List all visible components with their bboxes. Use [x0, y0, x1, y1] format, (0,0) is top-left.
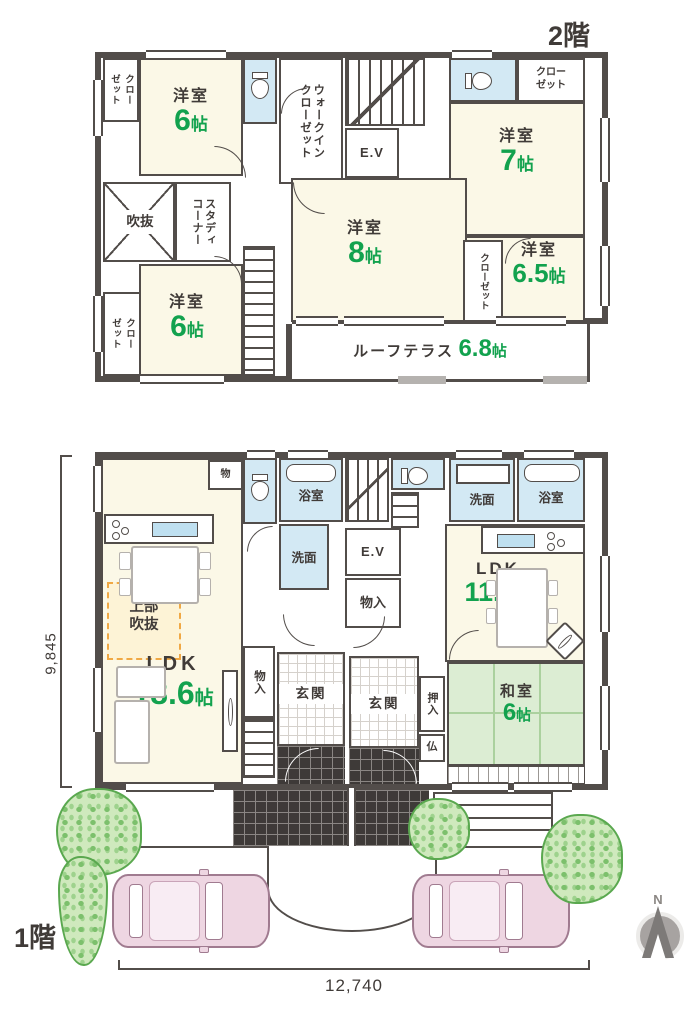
porch-apron [233, 790, 429, 846]
tv-icon [557, 633, 574, 650]
garden-step [457, 819, 553, 831]
f1-stairs-left-unit [345, 458, 389, 522]
window [496, 316, 566, 326]
burner-icon [112, 520, 120, 528]
f2-walkin-closet-label: ウォークイン クローゼット [281, 60, 341, 182]
f1-bath-left: 浴室 [279, 458, 343, 522]
sofa [114, 700, 150, 764]
compass-arrow-notch [650, 934, 666, 960]
f2-room-7 [449, 102, 585, 236]
car-mirror [199, 869, 209, 876]
approach-divider [347, 788, 356, 846]
f2-closet-bottom-left: クロー ゼット [103, 292, 141, 376]
window [140, 374, 224, 384]
f1-washitsu [447, 662, 585, 766]
sink-icon [497, 534, 535, 548]
window [296, 316, 338, 326]
car [412, 874, 570, 948]
f1-closet-top-label: 物 [210, 462, 241, 488]
dining-table [496, 568, 548, 648]
car-mirror [499, 946, 509, 953]
f2-void: 吹抜 [103, 182, 175, 262]
kitchen-counter [104, 514, 214, 544]
f2-closet-mid: クローゼット [463, 240, 503, 322]
burner-icon [557, 539, 565, 547]
burner-icon [547, 543, 555, 551]
dim-tick [60, 455, 72, 457]
chair [199, 552, 211, 570]
f2-closet-top-left: クロー ゼット [103, 58, 139, 122]
burner-icon [112, 532, 120, 540]
f1-butsudan-label: 仏 [421, 736, 443, 760]
f1-oshiire: 押入 [419, 676, 445, 732]
window [452, 782, 508, 792]
tree [408, 798, 470, 860]
f2-closet-bottom-left-label: クロー ゼット [105, 294, 139, 374]
toilet-icon [249, 72, 271, 102]
dim-width-label: 12,740 [254, 976, 454, 996]
f2-walkin-closet: ウォークイン クローゼット [279, 58, 343, 184]
dim-depth-label: 9,845 [43, 599, 60, 709]
floor1-title: 1階 [14, 916, 56, 955]
car-rear-window [429, 884, 443, 937]
window [344, 316, 444, 326]
dim-tick [588, 960, 590, 970]
dim-line-bottom [118, 968, 590, 970]
window [93, 668, 103, 732]
f1-genkan-left: 玄関 [277, 652, 345, 746]
window [93, 296, 103, 352]
chair [486, 580, 496, 596]
f2-study-corner-label: スタディ コーナー [177, 184, 229, 260]
f1-wash-right-label: 洗面 [451, 490, 513, 510]
f2-stairs-top [345, 58, 425, 126]
f2-closet-top-left-label: クロー ゼット [105, 60, 137, 120]
chair [119, 552, 131, 570]
f1-bath-left-label: 浴室 [281, 486, 341, 506]
f2-terrace-gate [543, 376, 587, 384]
window [126, 782, 214, 792]
car-windshield [505, 882, 523, 939]
f1-wash-left-label: 洗面 [281, 548, 327, 568]
bathtub-icon [286, 464, 336, 482]
chair [119, 578, 131, 596]
car-mirror [499, 869, 509, 876]
f2-closet-top-right: クロー ゼット [517, 58, 585, 102]
window [93, 466, 103, 512]
f1-wash-left: 洗面 [279, 524, 329, 590]
window [452, 50, 492, 60]
f2-study-corner: スタディ コーナー [175, 182, 231, 262]
f1-bath-right-label: 浴室 [519, 488, 583, 508]
chair [486, 608, 496, 624]
floor2-title: 2階 [548, 14, 590, 53]
f2-closet-mid-label: クローゼット [465, 242, 501, 320]
burner-icon [547, 532, 555, 540]
window [247, 450, 275, 460]
f2-wc-right [449, 58, 517, 102]
tv-icon [228, 698, 233, 726]
window [524, 450, 574, 460]
bathtub-icon [524, 464, 580, 482]
window [600, 118, 610, 182]
toilet-icon [465, 70, 495, 92]
dim-tick [60, 786, 72, 788]
toilet-icon [401, 465, 431, 487]
window [600, 246, 610, 306]
f2-roof-terrace [292, 324, 590, 382]
dining-table [131, 546, 199, 604]
floorplan-canvas: 2階 クロー ゼット ウォークイン クローゼット E.V クロー ゼット 吹抜 … [0, 0, 699, 1024]
chair [548, 608, 558, 624]
window [456, 450, 502, 460]
chair [548, 580, 558, 596]
f1-wc-right [391, 458, 445, 490]
kitchen-counter [481, 526, 585, 554]
f1-wash-right: 洗面 [449, 458, 515, 522]
f1-butsudan: 仏 [419, 734, 445, 762]
f2-wc-left [243, 58, 277, 124]
car-roof [149, 881, 200, 941]
f1-genkan-left-label: 玄関 [279, 684, 343, 704]
window [288, 450, 328, 460]
sofa [116, 666, 166, 698]
tree [58, 856, 108, 966]
f2-stairs-bottom [243, 246, 275, 376]
burner-icon [121, 527, 129, 535]
f1-closet-bottom-label: 物入 [245, 648, 273, 716]
chair [199, 578, 211, 596]
f1-genkan-right: 玄関 [349, 656, 419, 748]
tv-board [222, 670, 238, 752]
window [600, 686, 610, 750]
f1-bath-right: 浴室 [517, 458, 585, 522]
f1-elevator: E.V [345, 528, 401, 576]
f1-closet-bottom: 物入 [243, 646, 275, 718]
car [112, 874, 270, 948]
car-windshield [205, 882, 223, 939]
sink-icon [152, 522, 198, 537]
f2-void-label: 吹抜 [115, 210, 165, 234]
car-rear-window [129, 884, 143, 937]
toilet-icon [249, 474, 271, 504]
f1-genkan-right-label: 玄関 [351, 694, 417, 714]
window [514, 782, 572, 792]
f1-stairs-hall [243, 718, 275, 778]
f2-elevator: E.V [345, 128, 399, 178]
window [146, 50, 226, 60]
dim-line-left [60, 455, 62, 788]
window [93, 80, 103, 136]
window [600, 556, 610, 632]
vanity-icon [456, 464, 510, 484]
f1-closet-top: 物 [208, 460, 243, 490]
car-roof [449, 881, 500, 941]
f2-closet-top-right-label: クロー ゼット [519, 67, 583, 92]
dim-tick [118, 960, 120, 970]
f1-wc-left [243, 458, 277, 524]
tree [541, 814, 623, 904]
car-mirror [199, 946, 209, 953]
f1-oshiire-label: 押入 [421, 678, 443, 730]
f1-stairs-right-unit [391, 492, 419, 528]
f2-terrace-gate [398, 376, 446, 384]
